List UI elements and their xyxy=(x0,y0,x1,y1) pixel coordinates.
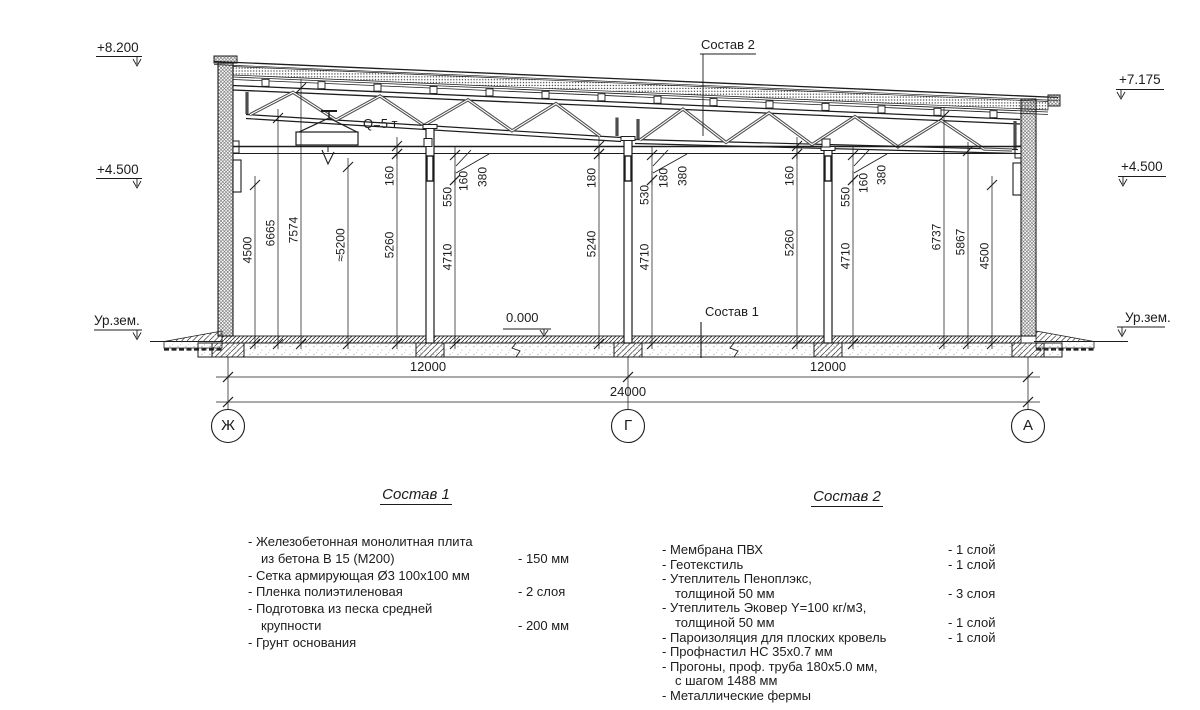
dim-label: 160 xyxy=(383,166,396,186)
dim-label: 380 xyxy=(875,165,888,185)
note-text: - Мембрана ПВХ xyxy=(662,542,763,557)
dim-label: 160 xyxy=(457,171,470,191)
span-dim-left: 12000 xyxy=(368,360,488,374)
note-line: толщиной 50 мм- 3 слоя xyxy=(662,586,1022,601)
note-line: - Профнастил НС 35х0.7 мм xyxy=(662,644,1022,659)
elevation-mark-right-mid: +4.500 xyxy=(1121,160,1163,175)
note-text: с шагом 1488 мм xyxy=(662,673,777,688)
note-line: - Пароизоляция для плоских кровель- 1 сл… xyxy=(662,630,1022,645)
zero-level-label: 0.000 xyxy=(506,311,539,325)
elevation-mark-left-ground: Ур.зем. xyxy=(94,314,140,329)
grid-bubble-a: А xyxy=(1010,407,1046,445)
columns xyxy=(423,125,835,344)
note-text: - Геотекстиль xyxy=(662,557,743,572)
floor-composition-list: - Железобетонная монолитная плитаиз бето… xyxy=(248,534,588,652)
elevation-mark-right-top: +7.175 xyxy=(1119,73,1161,88)
elevation-mark-left-mid: +4.500 xyxy=(97,163,139,178)
dim-label: 530 xyxy=(638,185,651,205)
dim-label: 4710 xyxy=(441,244,454,271)
note-line: - Мембрана ПВХ- 1 слой xyxy=(662,542,1022,557)
note-line: - Сетка армирующая Ø3 100х100 мм xyxy=(248,568,588,585)
dim-label: 4500 xyxy=(241,237,254,264)
note-value: - 1 слой xyxy=(948,630,996,645)
note-text: - Сетка армирующая Ø3 100х100 мм xyxy=(248,568,470,583)
dim-label: 5867 xyxy=(954,229,967,256)
dim-label: ≈5200 xyxy=(334,228,347,261)
floor-composition-callout: Состав 1 xyxy=(705,305,759,319)
note-text: - Пленка полиэтиленовая xyxy=(248,584,403,599)
dim-label: 5240 xyxy=(585,231,598,258)
note-text: - Профнастил НС 35х0.7 мм xyxy=(662,644,833,659)
drawing-canvas: +8.200 +4.500 Ур.зем. +7.175 +4.500 Ур.з… xyxy=(0,0,1200,710)
note-line: - Железобетонная монолитная плита xyxy=(248,534,588,551)
note-line: - Подготовка из песка средней xyxy=(248,601,588,618)
note-line: - Грунт основания xyxy=(248,635,588,652)
dim-label: 160 xyxy=(857,173,870,193)
note-line: - Металлические фермы xyxy=(662,688,1022,703)
note-line: - Утеплитель Эковер Y=100 кг/м3, xyxy=(662,600,1022,615)
note-value: - 200 мм xyxy=(518,618,569,633)
dim-label: 6665 xyxy=(264,220,277,247)
dim-label: 180 xyxy=(657,168,670,188)
dim-label: 160 xyxy=(783,166,796,186)
note-line: - Утеплитель Пеноплэкс, xyxy=(662,571,1022,586)
note-text: - Грунт основания xyxy=(248,635,356,650)
crane-trolley xyxy=(296,111,358,164)
roof xyxy=(214,62,1060,115)
note-text: - Подготовка из песка средней xyxy=(248,601,432,616)
note-line: - Прогоны, проф. труба 180х5.0 мм, xyxy=(662,659,1022,674)
dim-label: 4710 xyxy=(638,244,651,271)
elevation-mark-right-ground: Ур.зем. xyxy=(1125,311,1171,326)
note-text: толщиной 50 мм xyxy=(662,586,775,601)
note-text: - Утеплитель Эковер Y=100 кг/м3, xyxy=(662,600,866,615)
dim-label: 5260 xyxy=(783,230,796,257)
grid-bubble-g: Г xyxy=(610,407,646,445)
dim-label: 380 xyxy=(676,166,689,186)
note-line: толщиной 50 мм- 1 слой xyxy=(662,615,1022,630)
note-value: - 1 слой xyxy=(948,542,996,557)
span-dim-right: 12000 xyxy=(768,360,888,374)
note-value: - 150 мм xyxy=(518,551,569,566)
note-text: - Утеплитель Пеноплэкс, xyxy=(662,571,812,586)
dim-label: 5260 xyxy=(383,232,396,259)
note-value: - 3 слоя xyxy=(948,586,995,601)
elevation-mark-left-top: +8.200 xyxy=(97,41,139,56)
crane-capacity-label: Q=5 т xyxy=(363,117,398,131)
dim-label: 7574 xyxy=(287,217,300,244)
note-line: из бетона В 15 (М200)- 150 мм xyxy=(248,551,588,568)
dim-label: 180 xyxy=(585,168,598,188)
grid-bubble-zh: Ж xyxy=(210,407,246,445)
note-value: - 1 слой xyxy=(948,615,996,630)
note-line: крупности- 200 мм xyxy=(248,618,588,635)
note-text: - Железобетонная монолитная плита xyxy=(248,534,473,549)
note-line: с шагом 1488 мм xyxy=(662,673,1022,688)
sostav1-title: Состав 1 xyxy=(330,486,502,505)
roof-composition-callout: Состав 2 xyxy=(701,38,755,52)
dim-label: 380 xyxy=(476,167,489,187)
span-dim-total: 24000 xyxy=(568,385,688,399)
note-text: - Металлические фермы xyxy=(662,688,811,703)
note-text: толщиной 50 мм xyxy=(662,615,775,630)
note-text: - Пароизоляция для плоских кровель xyxy=(662,630,886,645)
note-text: - Прогоны, проф. труба 180х5.0 мм, xyxy=(662,659,878,674)
sostav2-title: Состав 2 xyxy=(761,488,933,507)
dim-label: 550 xyxy=(839,187,852,207)
dim-label: 4500 xyxy=(978,243,991,270)
note-line: - Геотекстиль- 1 слой xyxy=(662,557,1022,572)
note-text: крупности xyxy=(248,618,321,633)
note-line: - Пленка полиэтиленовая- 2 слоя xyxy=(248,584,588,601)
dim-label: 4710 xyxy=(839,243,852,270)
dim-label: 550 xyxy=(441,187,454,207)
dim-label: 6737 xyxy=(930,224,943,251)
note-value: - 1 слой xyxy=(948,557,996,572)
note-text: из бетона В 15 (М200) xyxy=(248,551,395,566)
note-value: - 2 слоя xyxy=(518,584,565,599)
roof-composition-list: - Мембрана ПВХ- 1 слой- Геотекстиль- 1 с… xyxy=(662,542,1022,703)
